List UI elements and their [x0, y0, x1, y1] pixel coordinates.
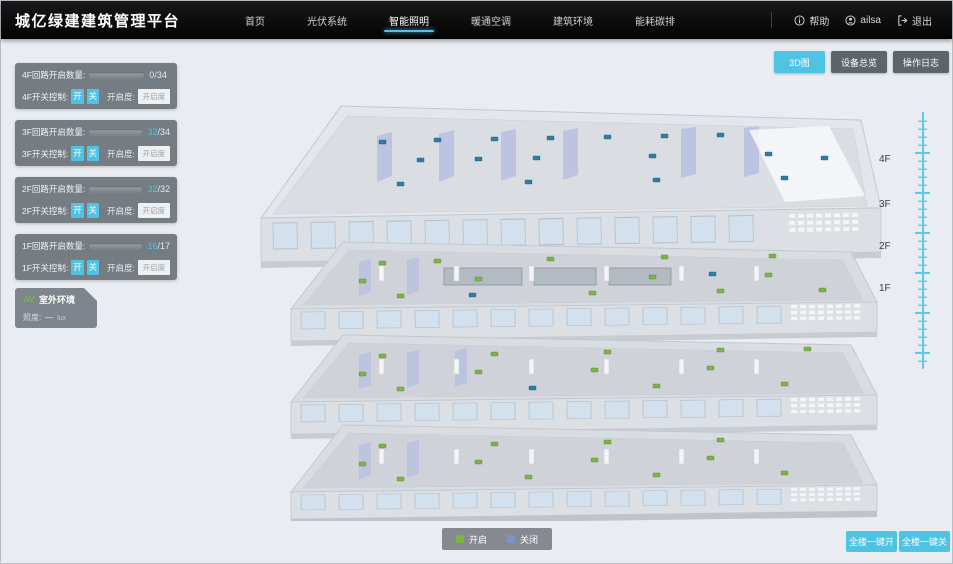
- legend-item-off: 关闭: [507, 533, 538, 546]
- floor-on-button[interactable]: 开: [71, 203, 83, 218]
- building-3d-model: [229, 96, 894, 521]
- username: ailsa: [860, 15, 881, 26]
- floor-off-button[interactable]: 关: [87, 146, 99, 161]
- floor-panel-2f: 2F回路开启数量: 32/32 2F开关控制: 开 关 开启度: %: [15, 177, 177, 223]
- dimming-label: 开启度:: [107, 262, 135, 274]
- floor-ruler-slider[interactable]: [914, 112, 932, 369]
- nav-energy-carbon[interactable]: 能耗碳排: [614, 1, 696, 39]
- floor-label-2f[interactable]: 2F: [879, 241, 891, 252]
- dimming-input[interactable]: [138, 146, 170, 161]
- help-button[interactable]: 帮助: [786, 13, 837, 28]
- floor-on-button[interactable]: 开: [71, 146, 83, 161]
- legend-off-swatch: [507, 535, 515, 543]
- illuminance-value: —: [45, 313, 53, 322]
- floor-panel-1f: 1F回路开启数量: 16/17 1F开关控制: 开 关 开启度: %: [15, 234, 177, 280]
- floor-label-1f[interactable]: 1F: [879, 283, 891, 294]
- floor-label-3f[interactable]: 3F: [879, 199, 891, 210]
- floor-on-button[interactable]: 开: [71, 89, 83, 104]
- help-label: 帮助: [809, 13, 829, 28]
- nav-building-env[interactable]: 建筑环境: [532, 1, 614, 39]
- switch-control-label: 4F开关控制:: [22, 91, 68, 103]
- floor-panel-3f: 3F回路开启数量: 32/34 3F开关控制: 开 关 开启度: %: [15, 120, 177, 166]
- sun-rays-icon: [23, 294, 35, 306]
- dimming-input[interactable]: [138, 260, 170, 275]
- illuminance-metric: 照度: — lux: [23, 312, 89, 323]
- legend-item-on: 开启: [456, 533, 487, 546]
- nav-hvac[interactable]: 暖通空调: [450, 1, 532, 39]
- outdoor-title: 室外环境: [39, 293, 75, 306]
- switch-control-label: 2F开关控制:: [22, 205, 68, 217]
- app-title: 城亿绿建建筑管理平台: [1, 10, 202, 31]
- legend-on-label: 开启: [469, 533, 487, 546]
- circuit-count-label: 1F回路开启数量:: [22, 240, 85, 252]
- nav-pv-system[interactable]: 光伏系统: [286, 1, 368, 39]
- circuit-count-value: 0/34: [149, 70, 167, 80]
- circuit-count-label: 4F回路开启数量:: [22, 69, 85, 81]
- status-legend: 开启 关闭: [442, 528, 552, 550]
- user-menu[interactable]: ailsa: [837, 15, 889, 26]
- bulk-controls: 全楼一键开 全楼一键关: [846, 531, 950, 552]
- tab-device-overview[interactable]: 设备总览: [831, 51, 887, 73]
- dimming-label: 开启度:: [107, 148, 135, 160]
- legend-on-swatch: [456, 535, 464, 543]
- nav-utilities: 帮助 ailsa 退出: [757, 1, 952, 39]
- circuit-progress-bar: [89, 243, 142, 250]
- nav-smart-lighting[interactable]: 智能照明: [368, 1, 450, 39]
- legend-off-label: 关闭: [520, 533, 538, 546]
- dimming-label: 开启度:: [107, 91, 135, 103]
- building-3d-viewport[interactable]: [229, 96, 894, 521]
- logout-button[interactable]: 退出: [889, 13, 940, 28]
- building-floor-2f: [291, 335, 877, 439]
- outdoor-env-panel: 室外环境 照度: — lux: [15, 288, 97, 328]
- illuminance-unit: lux: [57, 315, 66, 322]
- switch-control-label: 3F开关控制:: [22, 148, 68, 160]
- view-tabs: 3D图 设备总览 操作日志: [774, 51, 949, 73]
- top-navbar: 城亿绿建建筑管理平台 首页 光伏系统 智能照明 暖通空调 建筑环境 能耗碳排 帮…: [1, 1, 952, 39]
- all-on-button[interactable]: 全楼一键开: [846, 531, 897, 552]
- help-icon: [794, 15, 805, 26]
- user-icon: [845, 15, 856, 26]
- divider: [771, 12, 772, 28]
- nav-home[interactable]: 首页: [224, 1, 286, 39]
- circuit-progress-bar: [89, 129, 142, 136]
- dimming-label: 开启度:: [107, 205, 135, 217]
- circuit-progress-bar: [89, 186, 142, 193]
- building-floor-1f: [291, 425, 877, 521]
- floor-off-button[interactable]: 关: [87, 260, 99, 275]
- building-floor-3f: [291, 242, 877, 346]
- dimming-input[interactable]: [138, 203, 170, 218]
- circuit-count-value: 16/17: [147, 241, 170, 251]
- switch-control-label: 1F开关控制:: [22, 262, 68, 274]
- floor-panel-4f: 4F回路开启数量: 0/34 4F开关控制: 开 关 开启度: %: [15, 63, 177, 109]
- floor-label-4f[interactable]: 4F: [879, 154, 891, 165]
- circuit-count-label: 3F回路开启数量:: [22, 126, 85, 138]
- floor-off-button[interactable]: 关: [87, 89, 99, 104]
- ruler-line: [922, 112, 924, 369]
- logout-label: 退出: [912, 13, 932, 28]
- illuminance-label: 照度:: [23, 312, 41, 323]
- circuit-progress-bar: [89, 72, 144, 79]
- circuit-count-value: 32/32: [147, 184, 170, 194]
- logout-icon: [897, 15, 908, 26]
- circuit-count-label: 2F回路开启数量:: [22, 183, 85, 195]
- circuit-count-value: 32/34: [147, 127, 170, 137]
- app-window: 城亿绿建建筑管理平台 首页 光伏系统 智能照明 暖通空调 建筑环境 能耗碳排 帮…: [0, 0, 953, 564]
- tab-3d-view[interactable]: 3D图: [774, 51, 825, 73]
- floor-on-button[interactable]: 开: [71, 260, 83, 275]
- main-nav: 首页 光伏系统 智能照明 暖通空调 建筑环境 能耗碳排: [224, 1, 696, 39]
- dimming-input[interactable]: [138, 89, 170, 104]
- tab-operation-log[interactable]: 操作日志: [893, 51, 949, 73]
- all-off-button[interactable]: 全楼一键关: [899, 531, 950, 552]
- floor-off-button[interactable]: 关: [87, 203, 99, 218]
